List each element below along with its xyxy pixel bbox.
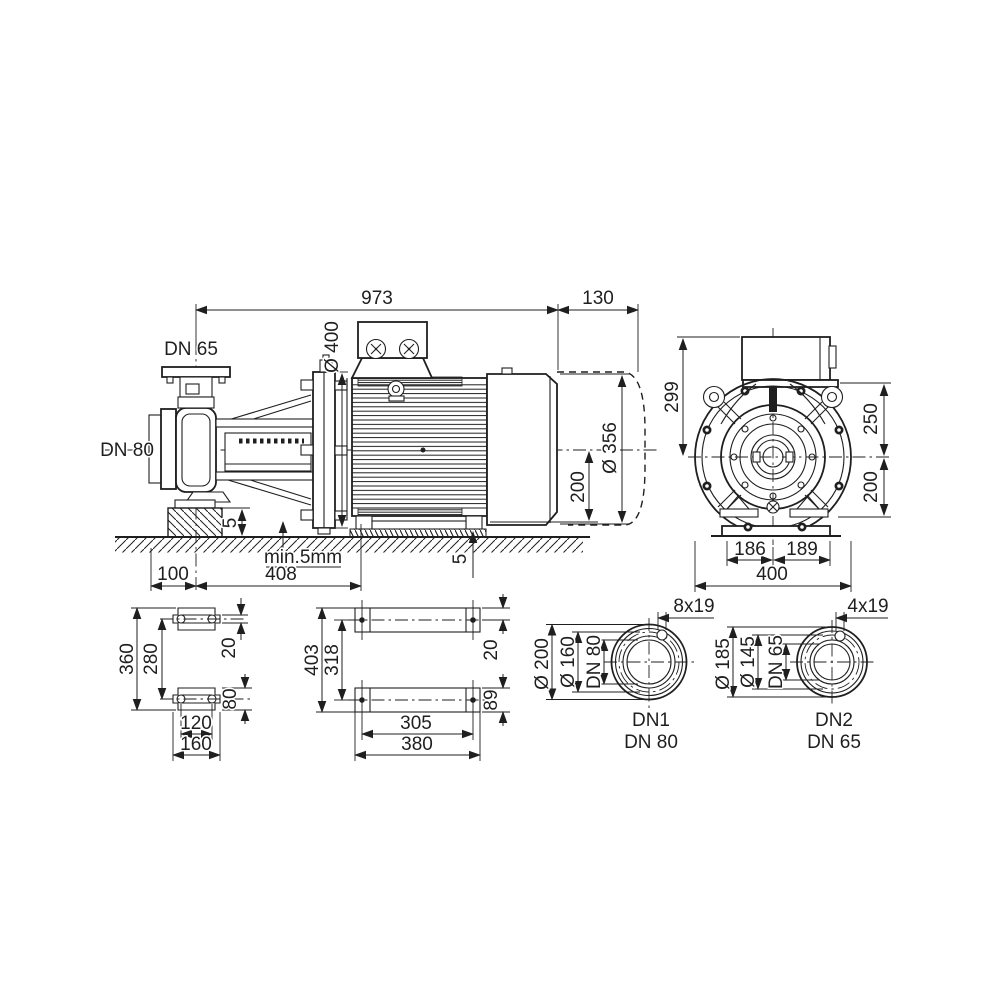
front-view: 299 250 200 186 189 400 [662, 328, 893, 592]
dim-973: 973 [361, 288, 393, 309]
cable-gland [829, 346, 836, 368]
dim-400: 400 [756, 564, 788, 585]
dim-250: 250 [861, 403, 882, 435]
dim-318: 318 [322, 644, 343, 676]
dn1-bolt-hole [657, 630, 667, 640]
lifting-eyebolt [388, 381, 404, 401]
dim-160: 160 [180, 734, 212, 755]
dim-380: 380 [401, 734, 433, 755]
label-dn1: DN1 [632, 710, 670, 731]
dim-100: 100 [157, 564, 189, 585]
dim-d200: Ø 200 [532, 638, 553, 690]
dim-280: 280 [141, 643, 162, 675]
dn2-bolt-hole [835, 631, 845, 641]
side-view: 973 130 DN 65 DN 80 Ø 400 Ø 356 200 5 mi… [100, 288, 660, 592]
pump-drawing: 973 130 DN 65 DN 80 Ø 400 Ø 356 200 5 mi… [0, 0, 1000, 1000]
dim-8x19: 8x19 [673, 596, 714, 617]
motor-foot-rear [466, 516, 482, 529]
dim-d160: Ø 160 [558, 636, 579, 688]
motor-foot-front [356, 516, 372, 529]
cooling-fins [353, 384, 487, 510]
balance-mark [421, 448, 426, 453]
terminal-box-front [742, 337, 830, 380]
dim-403: 403 [302, 644, 323, 676]
label-dn1-size: DN 80 [624, 732, 678, 753]
drawing-page: 973 130 DN 65 DN 80 Ø 400 Ø 356 200 5 mi… [0, 0, 1000, 1000]
flange-dn1-view: 8x19 Ø 200 Ø 160 DN 80 DN1 DN 80 [532, 596, 715, 753]
dim-360: 360 [117, 643, 138, 675]
dim-dn80-bore: DN 80 [584, 635, 605, 689]
motor-grout-strip [350, 529, 486, 537]
lantern-coupling [216, 395, 313, 505]
top-rib [769, 386, 777, 412]
dim-305: 305 [400, 713, 432, 734]
dim-d356: Ø 356 [600, 422, 621, 474]
dim-d145: Ø 145 [738, 636, 759, 688]
dim-130: 130 [582, 288, 614, 309]
dim-d185: Ø 185 [713, 638, 734, 690]
motor-foot-plan: 403 318 20 89 305 380 [302, 594, 510, 761]
pump-foot-plan: 360 280 20 80 120 160 [117, 598, 252, 761]
bearing-housing [487, 374, 557, 525]
motor-flange-plate [301, 355, 347, 534]
pump-pedestal [168, 508, 222, 537]
dim-5-motor: 5 [450, 554, 471, 565]
pump-foot-top [160, 608, 246, 630]
label-dn2: DN2 [815, 710, 853, 731]
dim-20-motor: 20 [481, 639, 502, 660]
dim-80: 80 [220, 688, 241, 709]
dim-299: 299 [662, 381, 683, 413]
dim-20-pump: 20 [219, 637, 240, 658]
dim-189: 189 [786, 539, 818, 560]
dim-89: 89 [481, 689, 502, 710]
dim-d400: Ø 400 [322, 321, 343, 373]
dim-186: 186 [734, 539, 766, 560]
dim-5-pump: 5 [220, 518, 241, 529]
dim-4x19: 4x19 [847, 596, 888, 617]
label-dn65: DN 65 [164, 339, 218, 360]
dim-408: 408 [265, 564, 297, 585]
ground-hatch [115, 538, 583, 553]
dim-dn65-bore: DN 65 [766, 635, 787, 689]
label-dn2-size: DN 65 [807, 732, 861, 753]
dim-200-front: 200 [861, 471, 882, 503]
flange-dn2-view: 4x19 Ø 185 Ø 145 DN 65 DN2 DN 65 [713, 596, 889, 753]
discharge-flange [162, 367, 230, 377]
pump-volute [149, 367, 230, 537]
dim-200-side: 200 [568, 471, 589, 503]
label-dn80: DN 80 [100, 440, 154, 461]
motor-foot-plate-top [348, 600, 488, 640]
dim-120: 120 [180, 713, 212, 734]
